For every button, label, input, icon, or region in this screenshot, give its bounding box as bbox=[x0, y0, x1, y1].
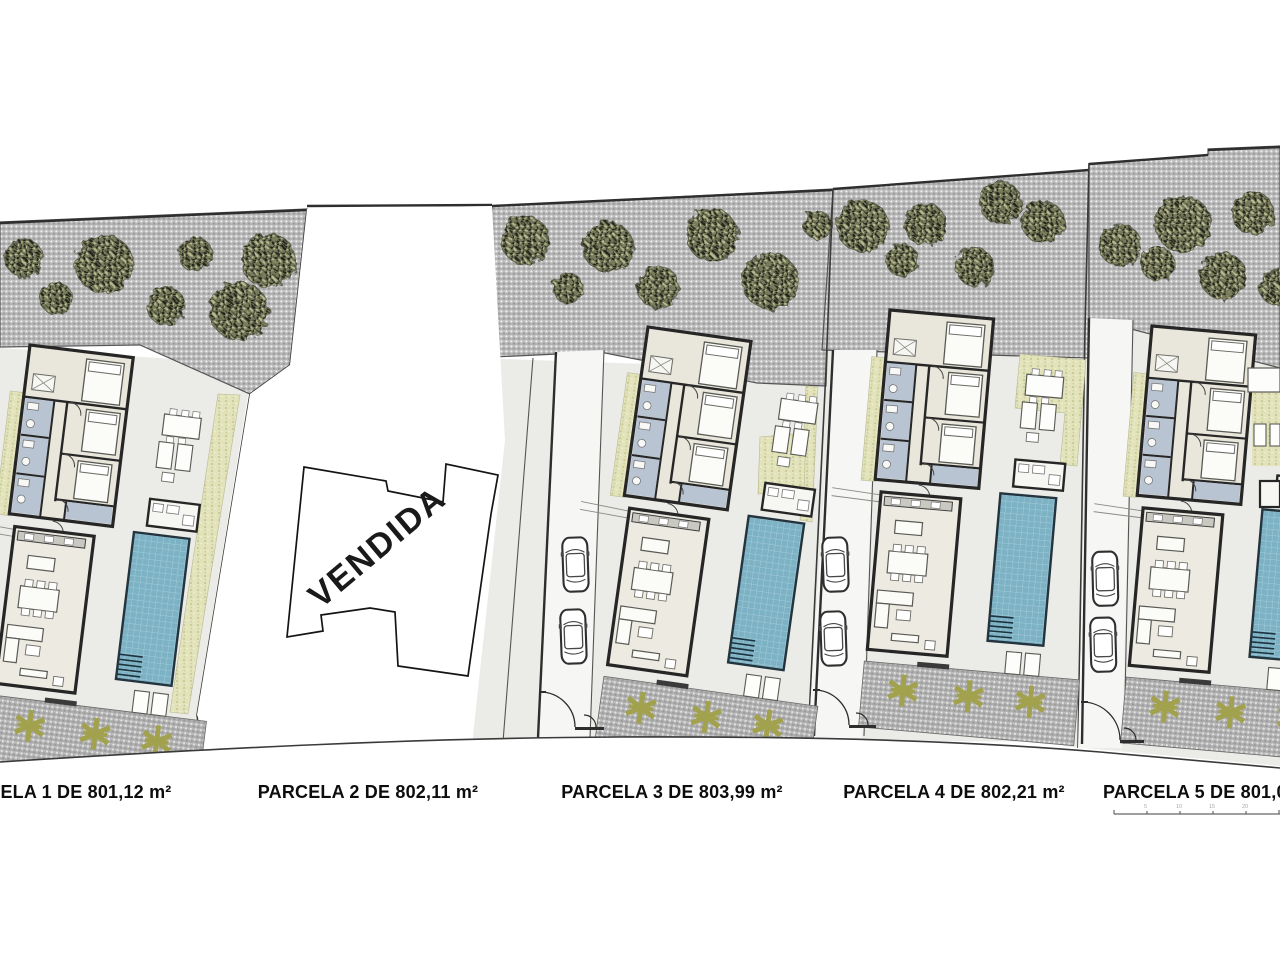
svg-text:5: 5 bbox=[1144, 804, 1147, 810]
svg-text:PARCELA 3 DE 803,99 m²: PARCELA 3 DE 803,99 m² bbox=[561, 782, 782, 802]
svg-text:PARCELA 4 DE 802,21 m²: PARCELA 4 DE 802,21 m² bbox=[843, 782, 1064, 802]
svg-text:15: 15 bbox=[1209, 804, 1215, 810]
svg-text:10: 10 bbox=[1176, 804, 1182, 810]
svg-text:20: 20 bbox=[1242, 804, 1248, 810]
svg-text:PARCELA 2 DE 802,11 m²: PARCELA 2 DE 802,11 m² bbox=[258, 782, 478, 802]
svg-text:PARCELA 1 DE 801,12 m²: PARCELA 1 DE 801,12 m² bbox=[0, 782, 171, 802]
svg-text:PARCELA 5 DE 801,04 m²: PARCELA 5 DE 801,04 m² bbox=[1103, 782, 1280, 802]
